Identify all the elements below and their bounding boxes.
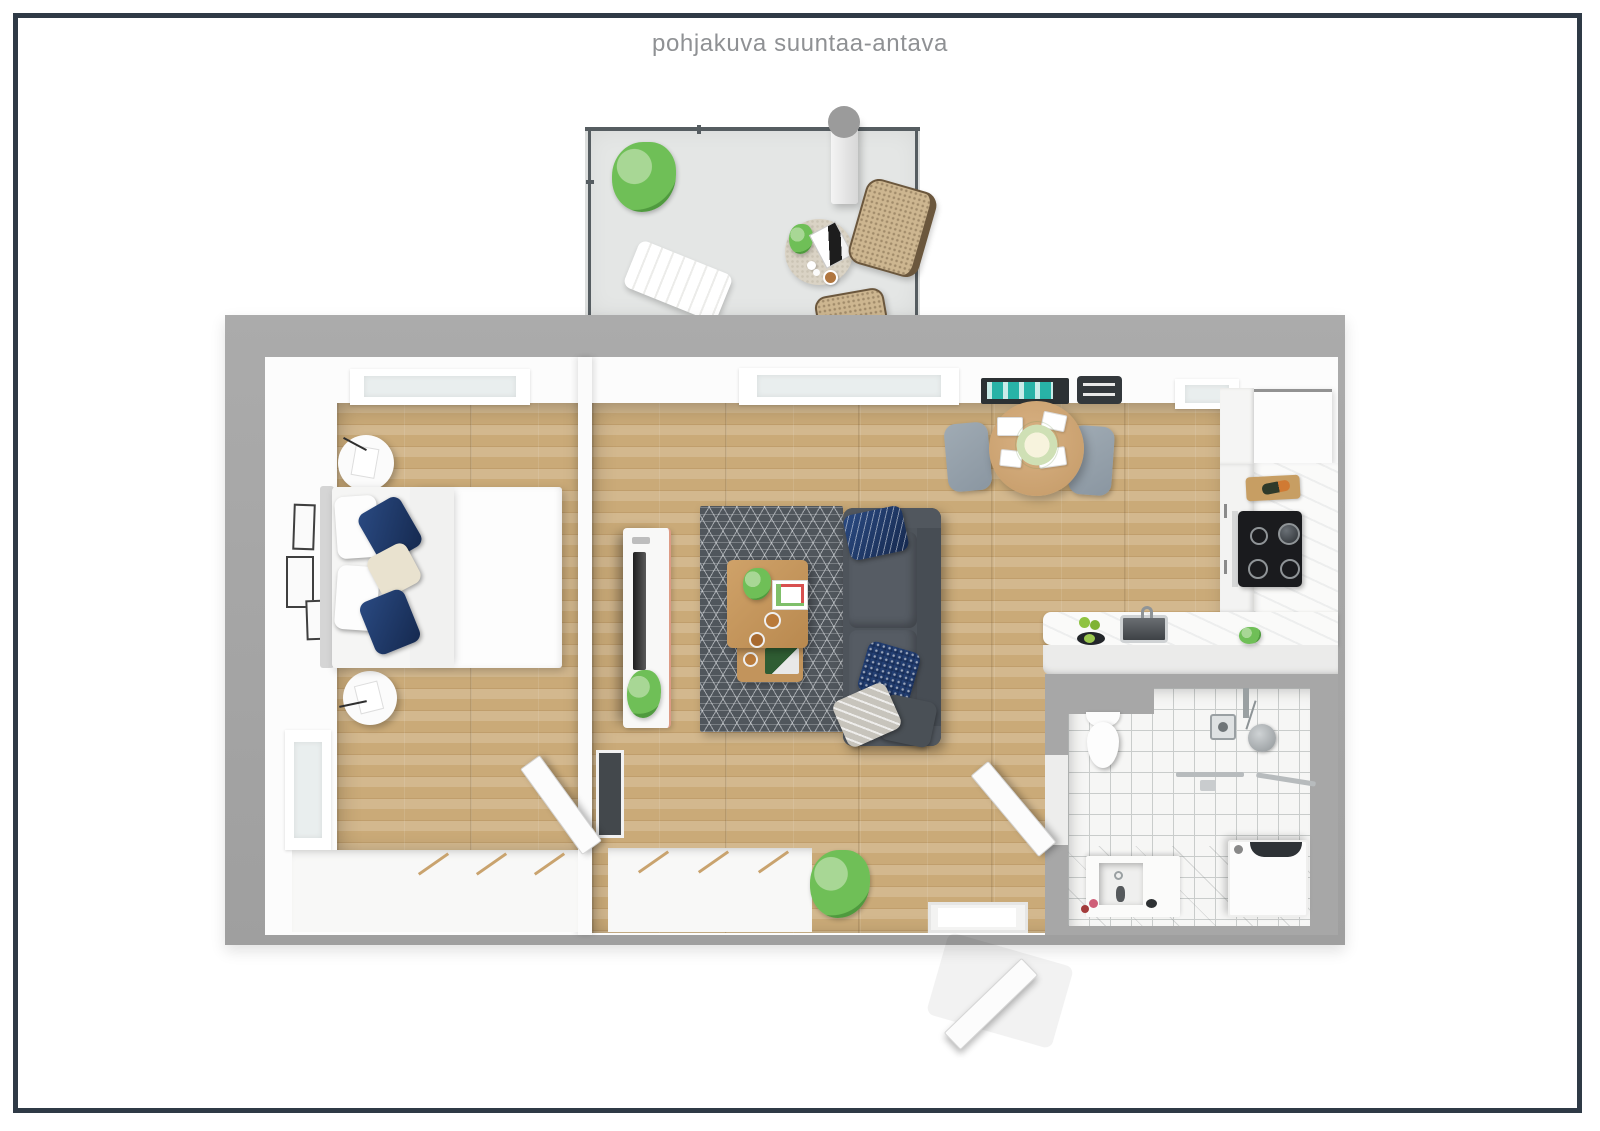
tv (633, 552, 646, 670)
sideboard-rail (698, 850, 729, 873)
kitchen-cooktop (1238, 511, 1302, 587)
cosmetic-item (1089, 899, 1098, 908)
duvet (410, 487, 562, 668)
washer-knob (1234, 845, 1243, 854)
decor-ball (813, 269, 820, 276)
bedroom-window-left (285, 730, 331, 850)
kitchen-sink (1120, 615, 1168, 643)
green-apple (1079, 617, 1090, 628)
coffee-cup (823, 270, 838, 285)
balcony-railing-left (588, 127, 591, 319)
candle (764, 612, 781, 629)
dining-chair (943, 421, 993, 493)
dining-table (989, 401, 1084, 496)
bedroom-doorway (596, 750, 624, 838)
cabinet-handle (1224, 560, 1227, 574)
teal-art-canvas (987, 382, 1053, 399)
living-room-window (739, 368, 959, 405)
bathroom-vanity (1086, 856, 1180, 917)
page-title: pohjakuva suuntaa-antava (0, 30, 1600, 58)
console-slat (1083, 383, 1115, 386)
railing-post (697, 125, 701, 134)
railing-post (586, 180, 594, 184)
shower-pipe (1243, 688, 1249, 718)
wardrobe-rail (418, 852, 449, 875)
bedroom-wardrobe (292, 850, 578, 932)
cabinet-handle (1224, 504, 1227, 518)
shower-head (1248, 724, 1276, 752)
door-mat (938, 908, 1016, 927)
sideboard-rail (638, 850, 669, 873)
sideboard-rail (758, 850, 789, 873)
hall-sideboard (608, 848, 812, 932)
table-book (772, 580, 808, 610)
floor-plan-page: pohjakuva suuntaa-antava (0, 0, 1600, 1131)
wardrobe-rail (476, 852, 507, 875)
console-slat (1083, 393, 1115, 396)
cooktop-burner (1248, 559, 1268, 579)
mixer-dial (1218, 722, 1228, 732)
washing-machine (1228, 840, 1308, 917)
window-pane (757, 375, 941, 397)
basin-drain (1114, 871, 1123, 880)
grilled-food (1261, 479, 1291, 495)
cooktop-burner (1250, 527, 1268, 545)
tv-console (623, 528, 671, 728)
nesting-table (737, 642, 803, 682)
balcony-column-cap (828, 106, 860, 138)
book (354, 681, 384, 715)
wall-frame (292, 504, 316, 551)
bedroom-nightstand (338, 435, 394, 491)
cooktop-burner (1278, 523, 1300, 545)
bathroom-doorway (1045, 755, 1068, 845)
wall-console (1077, 376, 1122, 404)
soap-dish (1200, 780, 1216, 791)
coffee-table (727, 560, 808, 648)
entry-threshold (928, 902, 1028, 933)
remote (632, 537, 650, 544)
cosmetic-item (1081, 905, 1089, 913)
bathroom-wall-step (1068, 688, 1154, 714)
kitchen-tall-cabinet (1254, 389, 1332, 463)
window-pane (364, 376, 516, 397)
console-plant (627, 670, 661, 718)
washer-lid (1250, 842, 1302, 857)
kitchen-peninsula-front (1043, 645, 1338, 675)
table-book (765, 648, 799, 674)
flower-centerpiece (1015, 421, 1059, 469)
vanity-faucet (1116, 886, 1125, 902)
fruit-bowl (1077, 632, 1105, 645)
window-pane (294, 742, 322, 838)
candle (743, 652, 758, 667)
cosmetic-item (1146, 899, 1157, 908)
candle (749, 632, 765, 648)
cutting-board (1245, 475, 1300, 502)
table-plant (743, 568, 771, 600)
balcony-railing-top (585, 127, 920, 131)
green-apple (1090, 620, 1100, 630)
bedroom-window-top (350, 369, 530, 405)
bedroom-nightstand (343, 671, 397, 725)
wardrobe-rail (534, 852, 565, 875)
cooktop-burner (1280, 559, 1300, 579)
teal-wall-art (981, 378, 1069, 404)
sink-faucet (1141, 606, 1153, 618)
kitchen-upper-cabinet (1220, 388, 1254, 464)
lime (1084, 634, 1095, 643)
shower-mixer (1210, 714, 1236, 740)
towel-bar (1176, 772, 1244, 777)
